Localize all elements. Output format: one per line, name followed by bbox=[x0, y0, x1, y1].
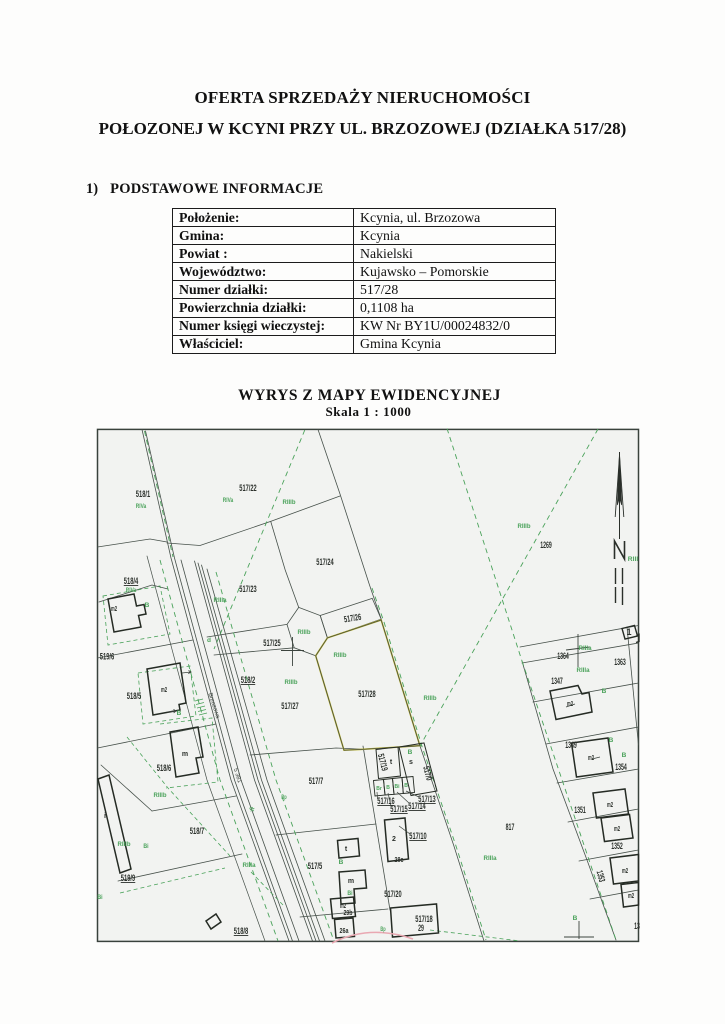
svg-text:RIIIb: RIIIb bbox=[285, 679, 298, 686]
svg-text:B: B bbox=[408, 749, 413, 756]
svg-text:m2: m2 bbox=[622, 868, 628, 875]
svg-text:m2: m2 bbox=[111, 606, 117, 613]
svg-text:29b: 29b bbox=[344, 910, 353, 917]
svg-text:1: 1 bbox=[626, 627, 631, 637]
svg-text:RIIIb: RIIIb bbox=[118, 841, 131, 848]
svg-text:517/7: 517/7 bbox=[309, 776, 324, 786]
svg-text:m: m bbox=[182, 751, 188, 758]
svg-text:Bp: Bp bbox=[281, 794, 286, 801]
svg-text:517/20: 517/20 bbox=[384, 889, 401, 899]
svg-text:RIIIb: RIIIb bbox=[424, 695, 437, 702]
svg-text:1349: 1349 bbox=[565, 740, 577, 750]
svg-text:RIIIb: RIIIb bbox=[283, 499, 296, 506]
svg-text:26a: 26a bbox=[340, 928, 349, 935]
svg-text:RIVa: RIVa bbox=[223, 497, 234, 504]
svg-text:518/7: 518/7 bbox=[190, 826, 205, 836]
svg-text:518/6: 518/6 bbox=[157, 763, 172, 773]
svg-text:m2: m2 bbox=[628, 893, 634, 900]
svg-text:1269: 1269 bbox=[540, 540, 552, 550]
svg-text:517/5: 517/5 bbox=[308, 861, 323, 871]
svg-text:m2: m2 bbox=[161, 687, 167, 694]
svg-text:1363: 1363 bbox=[614, 657, 626, 667]
svg-text:1351: 1351 bbox=[574, 805, 586, 815]
svg-text:m2: m2 bbox=[588, 755, 594, 762]
svg-text:RIVa: RIVa bbox=[136, 503, 147, 510]
svg-text:B: B bbox=[177, 710, 182, 717]
svg-text:m2: m2 bbox=[340, 903, 346, 910]
svg-text:s: s bbox=[409, 759, 413, 766]
svg-text:518/4: 518/4 bbox=[124, 576, 139, 586]
svg-text:B: B bbox=[339, 859, 344, 866]
svg-text:B: B bbox=[622, 752, 627, 759]
svg-text:B: B bbox=[573, 915, 578, 922]
svg-text:RIII: RIII bbox=[628, 556, 639, 563]
svg-text:i: i bbox=[104, 813, 106, 820]
svg-text:RIIIa: RIIIa bbox=[243, 862, 256, 869]
svg-text:517/22: 517/22 bbox=[239, 483, 256, 493]
svg-text:m2: m2 bbox=[614, 826, 620, 833]
svg-text:Bi: Bi bbox=[395, 784, 401, 790]
svg-text:517/28: 517/28 bbox=[358, 689, 375, 699]
svg-text:517/13: 517/13 bbox=[418, 794, 435, 804]
svg-text:519/6: 519/6 bbox=[100, 652, 115, 662]
svg-text:RIIIa: RIIIa bbox=[577, 667, 590, 674]
svg-text:518/8: 518/8 bbox=[234, 926, 249, 936]
svg-text:d: d bbox=[207, 637, 211, 644]
svg-text:B: B bbox=[386, 785, 390, 791]
svg-text:Bp: Bp bbox=[380, 926, 385, 933]
svg-text:518/1: 518/1 bbox=[136, 489, 151, 499]
svg-text:28c: 28c bbox=[395, 857, 404, 864]
svg-text:1354: 1354 bbox=[615, 762, 627, 772]
svg-text:m: m bbox=[348, 878, 354, 885]
svg-text:RIIIa: RIIIa bbox=[579, 645, 592, 652]
svg-text:RIIIa: RIIIa bbox=[484, 855, 497, 862]
svg-text:Bi: Bi bbox=[143, 843, 148, 850]
svg-text:29: 29 bbox=[418, 923, 424, 933]
svg-text:RIIIb: RIIIb bbox=[154, 792, 167, 799]
svg-text:RIIIb: RIIIb bbox=[334, 652, 347, 659]
svg-text:Bi: Bi bbox=[97, 894, 102, 901]
svg-text:m2: m2 bbox=[607, 802, 613, 809]
svg-text:1347: 1347 bbox=[551, 676, 563, 686]
svg-text:m2: m2 bbox=[567, 701, 573, 708]
svg-text:RIIIb: RIIIb bbox=[518, 523, 531, 530]
svg-text:B: B bbox=[145, 602, 150, 609]
svg-text:517/25: 517/25 bbox=[263, 638, 280, 648]
svg-text:517/27: 517/27 bbox=[281, 701, 298, 711]
svg-text:RIIIa: RIIIa bbox=[214, 597, 227, 604]
svg-text:517/23: 517/23 bbox=[239, 584, 256, 594]
svg-text:RIIIb: RIIIb bbox=[298, 629, 311, 636]
svg-text:Br: Br bbox=[376, 786, 382, 792]
svg-text:RIVa: RIVa bbox=[126, 587, 137, 594]
svg-text:B: B bbox=[609, 737, 614, 744]
svg-text:B: B bbox=[602, 688, 607, 695]
svg-text:518/2: 518/2 bbox=[241, 675, 256, 685]
svg-text:518/5: 518/5 bbox=[127, 691, 142, 701]
svg-text:517/15: 517/15 bbox=[390, 804, 407, 814]
svg-text:519/9: 519/9 bbox=[121, 873, 136, 883]
svg-text:517/24: 517/24 bbox=[316, 557, 333, 567]
svg-text:1364: 1364 bbox=[557, 651, 569, 661]
svg-text:1352: 1352 bbox=[611, 841, 623, 851]
svg-text:Bi: Bi bbox=[347, 890, 352, 897]
svg-text:13: 13 bbox=[634, 921, 640, 931]
svg-text:817: 817 bbox=[506, 822, 515, 832]
svg-text:517/10: 517/10 bbox=[409, 831, 426, 841]
svg-text:B: B bbox=[404, 783, 408, 789]
svg-text:2: 2 bbox=[392, 836, 396, 843]
